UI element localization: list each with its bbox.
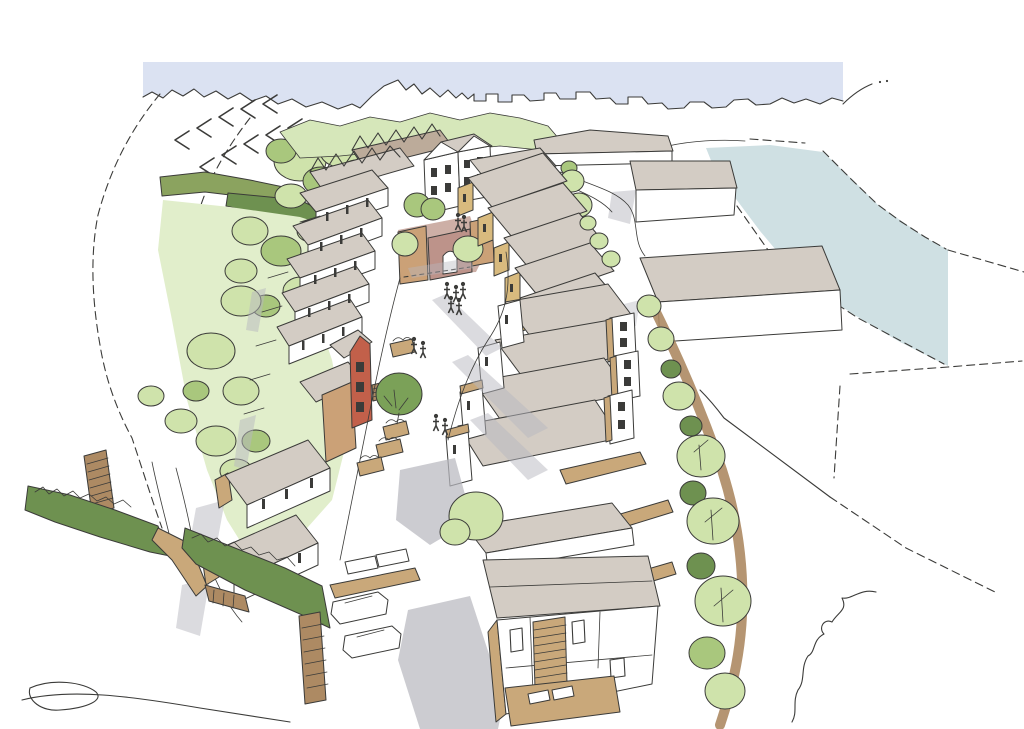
tree (663, 382, 695, 410)
tree (677, 435, 725, 477)
roof (630, 161, 737, 190)
masterplan-sketch (0, 0, 1024, 729)
tree (637, 295, 661, 317)
sky-band (143, 62, 888, 121)
tree (648, 327, 674, 351)
tree (440, 519, 470, 545)
tree (689, 637, 725, 669)
sketch-dot (886, 80, 888, 82)
shrub (687, 553, 715, 579)
tree (602, 251, 620, 267)
tree (580, 216, 596, 230)
tree (187, 333, 235, 369)
sketch-dot (879, 81, 881, 83)
plaza-tree (392, 232, 418, 256)
sketch-canvas (0, 0, 1024, 729)
shrub (680, 416, 702, 436)
tree (225, 259, 257, 283)
windows (356, 362, 364, 412)
plaza-tree (421, 198, 445, 220)
tree (183, 381, 209, 401)
shrub (661, 360, 681, 378)
tree (196, 426, 236, 456)
tree (590, 233, 608, 249)
outbuilding-3 (640, 246, 842, 342)
tree-crown (376, 373, 422, 415)
quoin-strip (606, 318, 614, 362)
tree (232, 217, 268, 245)
tree (705, 673, 745, 709)
tree (138, 386, 164, 406)
quoin-strip (604, 396, 612, 442)
wall (498, 300, 524, 348)
tree (165, 409, 197, 433)
tree (223, 377, 259, 405)
outbuilding-2 (630, 161, 737, 222)
